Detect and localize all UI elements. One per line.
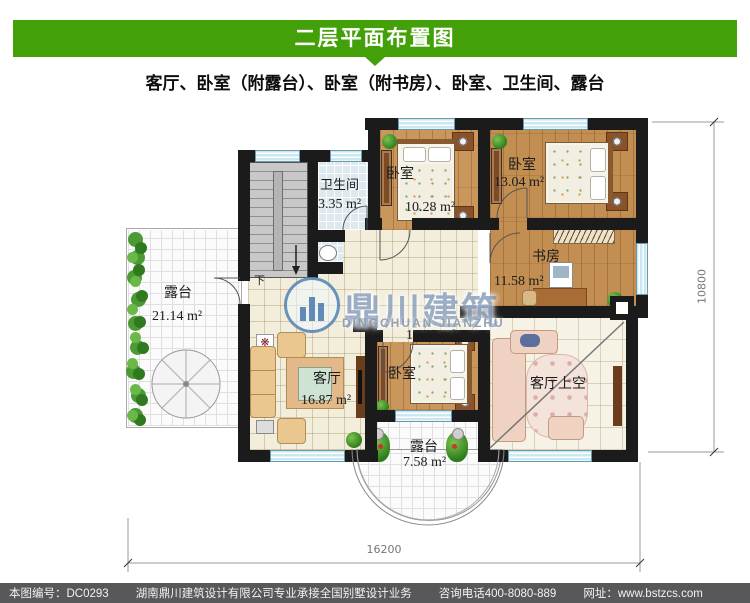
figure	[520, 334, 540, 347]
div	[590, 148, 606, 172]
window	[508, 450, 592, 462]
div	[467, 345, 471, 403]
div	[428, 147, 451, 162]
corner-column	[610, 296, 634, 320]
wall-segment	[636, 118, 648, 243]
bed	[410, 344, 472, 404]
room-label-bathroom: 卫生间	[320, 174, 359, 193]
line	[124, 559, 132, 567]
planter-pot	[452, 428, 464, 440]
div	[553, 266, 569, 278]
line	[710, 448, 718, 456]
div	[450, 377, 465, 400]
armchair	[277, 332, 306, 358]
sofa	[250, 346, 276, 418]
wall-segment	[365, 218, 382, 230]
wall-segment	[478, 330, 490, 462]
footer-bar: 本图编号：DC0293 湖南鼎川建筑设计有限公司专业承接全国别墅设计业务 咨询电…	[0, 583, 750, 603]
plant	[382, 134, 397, 149]
window	[523, 118, 588, 130]
wall-segment	[412, 218, 490, 230]
dimension-width: 16200	[339, 543, 429, 556]
window	[398, 118, 455, 130]
wall-segment	[313, 262, 343, 274]
wall-segment	[527, 218, 636, 230]
company-line: 湖南鼎川建筑设计有限公司专业承接全国别墅设计业务	[136, 585, 412, 601]
room-area-study: 11.58 m²	[494, 274, 544, 290]
hedge-plants	[135, 242, 147, 254]
window	[270, 450, 345, 462]
div	[450, 350, 465, 373]
div	[403, 147, 426, 162]
room-label-terrace-bottom: 露台	[410, 436, 438, 456]
wall-segment	[353, 318, 377, 332]
page-title: 二层平面布置图	[13, 20, 737, 57]
room-area-bedroom-top-right: 13.04 m²	[494, 175, 544, 191]
line	[636, 559, 644, 567]
window	[330, 150, 362, 162]
room-area-terrace-bottom: 7.58 m²	[403, 455, 446, 471]
room-area-bedroom-bottom: 10.28 m²	[406, 328, 456, 344]
room-label-bedroom-top-right: 卧室	[508, 154, 536, 174]
div	[413, 347, 450, 401]
wall-segment	[238, 304, 250, 462]
stereo-cabinet	[256, 420, 274, 434]
wardrobe	[378, 346, 388, 404]
void-tv-cabinet	[613, 366, 622, 426]
terrace-left-floor	[128, 230, 240, 426]
div	[398, 140, 454, 144]
wall-segment	[626, 318, 638, 462]
phone-line: 咨询电话400-8080-889	[439, 585, 557, 601]
nightstand	[452, 132, 474, 151]
window	[636, 243, 648, 295]
wall-segment	[490, 218, 499, 230]
room-area-bedroom-top-center: 10.28 m²	[405, 200, 455, 216]
room-area-bathroom: 3.35 m²	[318, 197, 361, 213]
div	[590, 176, 606, 200]
room-area-terrace-left: 21.14 m²	[152, 309, 202, 325]
desk-chair	[522, 290, 537, 306]
room-label-study: 书房	[532, 246, 560, 266]
dimension-height: 10800	[696, 267, 709, 307]
wall-segment	[365, 330, 377, 462]
plant	[346, 432, 362, 448]
div	[616, 302, 628, 314]
wall-segment	[308, 162, 318, 278]
hedge-plants	[127, 252, 138, 263]
stair-opening-hatch	[553, 228, 615, 244]
page: 二层平面布置图 客厅、卧室（附露台）、卧室（附书房）、卧室、卫生间、露台	[0, 0, 750, 603]
stair-down-label: 下	[254, 272, 265, 288]
line	[710, 118, 718, 126]
div	[608, 143, 612, 203]
flower	[452, 444, 457, 449]
wall-segment	[365, 410, 395, 422]
room-label-bedroom-bottom: 卧室	[388, 363, 416, 383]
plant	[492, 134, 507, 149]
void-armchair	[548, 416, 584, 440]
wall-segment	[238, 150, 250, 281]
bed	[545, 142, 613, 204]
room-label-living-void: 客厅上空	[530, 373, 586, 393]
room-area-living: 16.87 m²	[301, 393, 351, 409]
staircase	[248, 162, 308, 278]
wall-segment	[368, 118, 380, 230]
header-pointer	[365, 57, 385, 66]
wall-segment	[478, 118, 490, 230]
header-bar: 二层平面布置图	[13, 20, 737, 57]
div	[358, 370, 362, 404]
window	[395, 410, 452, 422]
wall-segment	[313, 230, 345, 242]
sink	[319, 245, 337, 261]
website-line: 网址：www.bstzcs.com	[583, 585, 703, 601]
room-label-terrace-left: 露台	[164, 282, 192, 302]
window	[255, 150, 300, 162]
sheet-number: 本图编号：DC0293	[9, 585, 109, 601]
div	[548, 145, 590, 201]
room-summary-subtitle: 客厅、卧室（附露台）、卧室（附书房）、卧室、卫生间、露台	[0, 69, 750, 94]
wall-segment	[636, 295, 648, 318]
wall-segment	[478, 450, 510, 462]
stair-rail	[273, 171, 283, 271]
room-label-living: 客厅	[313, 368, 341, 388]
armchair	[277, 418, 306, 444]
room-label-bedroom-top-center: 卧室	[386, 163, 414, 183]
bathroom-floor	[318, 162, 368, 230]
flower	[378, 444, 383, 449]
